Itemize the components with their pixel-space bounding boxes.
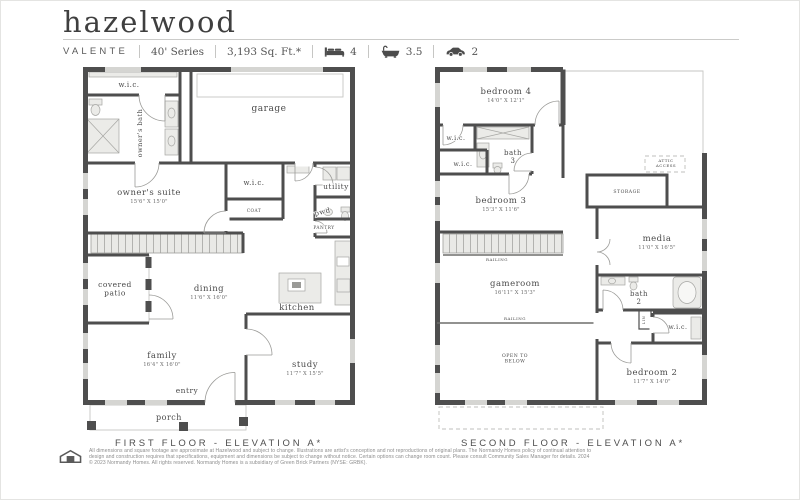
room-label: owner's bath — [136, 109, 144, 158]
spec-bath: 3.5 — [380, 45, 423, 58]
room-label: COAT — [247, 209, 262, 214]
sheet-header: hazelwood VALENTE40' Series3,193 Sq. Ft.… — [63, 7, 739, 58]
bath-icon — [380, 45, 401, 58]
builder-house-logo-icon — [59, 449, 82, 464]
room-label: PANTRY — [313, 226, 334, 231]
room-label: family16'4" X 16'0" — [143, 351, 181, 368]
room-label: coveredpatio — [98, 280, 132, 298]
second-floor-stairs — [443, 234, 563, 253]
spec-separator — [215, 45, 216, 58]
spec-value: VALENTE — [63, 46, 128, 57]
room-label: utility — [323, 182, 349, 191]
spec-item-0: VALENTE — [63, 46, 128, 57]
room-label: w.i.c. — [454, 161, 473, 168]
room-label: bath2 — [630, 290, 648, 306]
room-label: w.i.c. — [669, 324, 688, 331]
room-label: kitchen — [279, 303, 315, 313]
room-label: owner's suite15'6" X 15'0" — [117, 188, 181, 205]
car-icon — [445, 45, 466, 58]
room-label: RAILING — [486, 257, 508, 262]
spec-separator — [368, 45, 369, 58]
room-label: bedroom 211'7" X 14'0" — [627, 368, 678, 385]
room-label: RAILING — [504, 316, 526, 321]
second-floor-railings — [437, 255, 597, 323]
room-label: dining11'6" X 16'0" — [190, 284, 228, 301]
room-label: bedroom 414'0" X 12'1" — [481, 87, 532, 104]
room-label: STORAGE — [613, 189, 640, 195]
second-floor-plan: bedroom 414'0" X 12'1"w.i.c.bath3w.i.c.b… — [435, 67, 711, 433]
spec-row: VALENTE40' Series3,193 Sq. Ft.*43.52 — [63, 45, 739, 58]
first-floor-plan: w.i.c.owner's bathgarageowner's suite15'… — [83, 67, 355, 433]
room-label: porch — [156, 413, 182, 422]
second-floor-thin-lines — [565, 71, 703, 153]
spec-bed: 4 — [324, 45, 357, 58]
spec-car: 2 — [445, 45, 478, 58]
room-label: bedroom 315'3" X 11'6" — [476, 196, 527, 213]
disclaimer-line: © 2023 Normandy Homes. All rights reserv… — [89, 460, 591, 466]
page-footer: All dimensions and square footage are ap… — [59, 448, 743, 466]
title-divider — [63, 39, 739, 40]
room-label: gameroom16'11" X 15'3" — [490, 279, 540, 296]
room-label: OPEN TOBELOW — [502, 353, 528, 365]
spec-value: 2 — [471, 46, 478, 58]
bed-icon — [324, 45, 345, 58]
spec-item-1: 40' Series — [151, 46, 204, 58]
spec-separator — [433, 45, 434, 58]
floorplan-sheet: hazelwood VALENTE40' Series3,193 Sq. Ft.… — [0, 0, 800, 500]
room-label: LIN — [642, 316, 646, 324]
spec-separator — [139, 45, 140, 58]
room-label: media11'0" X 16'5" — [638, 234, 676, 251]
room-label: w.i.c. — [119, 81, 140, 89]
first-floor-stairs — [91, 233, 243, 253]
room-label: entry — [176, 386, 199, 395]
room-label: w.i.c. — [447, 135, 466, 142]
spec-separator — [312, 45, 313, 58]
room-label: study11'7" X 15'5" — [286, 360, 324, 377]
plan-title: hazelwood — [63, 7, 739, 37]
room-label: ATTICACCESS — [655, 158, 676, 168]
spec-value: 4 — [350, 46, 357, 58]
room-label: w.i.c. — [244, 179, 265, 187]
spec-item-2: 3,193 Sq. Ft.* — [227, 46, 301, 58]
room-label: bath3 — [504, 149, 522, 165]
spec-value: 40' Series — [151, 46, 204, 58]
spec-value: 3,193 Sq. Ft.* — [227, 46, 301, 58]
disclaimer-text: All dimensions and square footage are ap… — [89, 448, 591, 466]
spec-value: 3.5 — [406, 46, 423, 58]
room-label: garage — [252, 104, 287, 114]
